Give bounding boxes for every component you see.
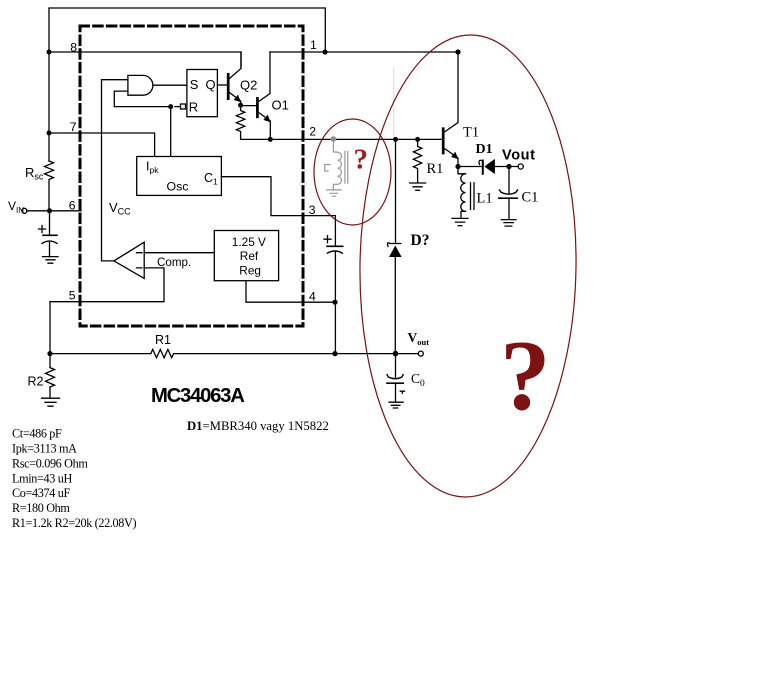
svg-text:Ipk=3113 mA: Ipk=3113 mA — [12, 441, 77, 455]
svg-text:R1=1.2k R2=20k (22.08V): R1=1.2k R2=20k (22.08V) — [12, 516, 136, 530]
svg-text:6: 6 — [69, 199, 76, 213]
svg-text:1: 1 — [310, 38, 317, 52]
svg-text:R1: R1 — [427, 161, 444, 177]
svg-text:VIN: VIN — [8, 199, 24, 215]
svg-text:Q: Q — [206, 77, 216, 92]
svg-text:D1=MBR340 vagy 1N5822: D1=MBR340 vagy 1N5822 — [187, 419, 329, 433]
svg-text:D1: D1 — [476, 142, 493, 157]
svg-text:Q2: Q2 — [240, 78, 257, 93]
svg-text:Lmin=43 uH: Lmin=43 uH — [12, 471, 72, 485]
svg-text:8: 8 — [70, 41, 77, 55]
svg-text:Vout: Vout — [502, 148, 536, 164]
svg-text:Osc: Osc — [167, 180, 189, 194]
svg-text:?: ? — [500, 319, 551, 431]
svg-text:Reg: Reg — [239, 264, 261, 278]
svg-text:Co=4374 uF: Co=4374 uF — [12, 486, 70, 500]
svg-text:4: 4 — [309, 290, 316, 304]
svg-text:C0: C0 — [411, 371, 425, 389]
svg-text:3: 3 — [309, 203, 316, 217]
svg-text:T1: T1 — [463, 125, 479, 141]
svg-text:Vout: Vout — [408, 330, 430, 347]
svg-text:L1: L1 — [477, 191, 493, 207]
svg-text:VCC: VCC — [109, 200, 131, 217]
svg-text:Comp.: Comp. — [157, 256, 191, 269]
svg-text:Rsc: Rsc — [25, 165, 44, 182]
svg-text:R=180 Ohm: R=180 Ohm — [12, 501, 70, 515]
svg-text:C1: C1 — [522, 190, 539, 206]
svg-text:R2: R2 — [28, 375, 44, 389]
svg-text:S: S — [190, 77, 199, 92]
svg-text:7: 7 — [70, 120, 77, 134]
svg-text:O1: O1 — [272, 98, 289, 113]
svg-text:R: R — [189, 99, 198, 114]
svg-text:MC34063A: MC34063A — [151, 385, 245, 407]
svg-text:D?: D? — [411, 232, 430, 249]
svg-text:Ct=486 pF: Ct=486 pF — [12, 426, 62, 440]
svg-text:5: 5 — [69, 289, 76, 303]
svg-text:2: 2 — [309, 125, 316, 139]
svg-text:Ref: Ref — [240, 249, 259, 263]
svg-text:R1: R1 — [155, 333, 171, 347]
svg-text:?: ? — [354, 144, 369, 176]
svg-text:1.25 V: 1.25 V — [232, 235, 266, 249]
svg-text:Rsc=0.096 Ohm: Rsc=0.096 Ohm — [12, 456, 88, 470]
